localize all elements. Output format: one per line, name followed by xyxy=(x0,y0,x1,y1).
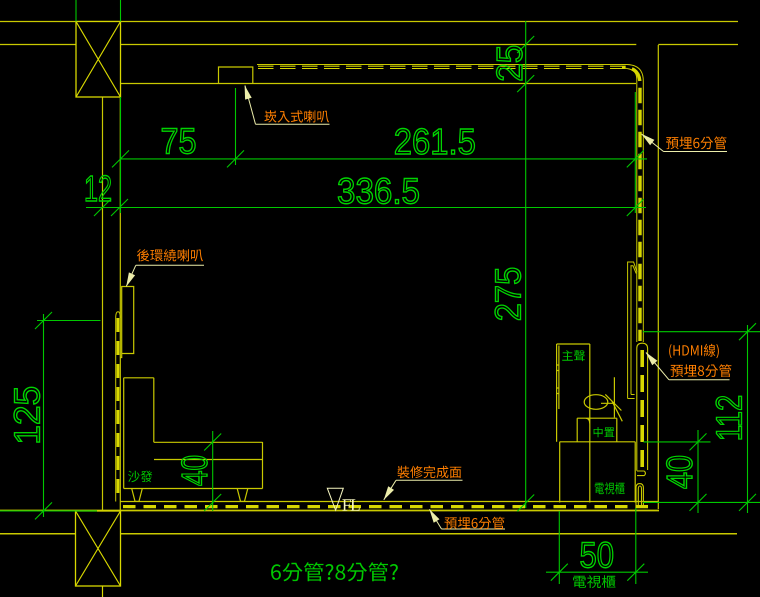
svg-text:336.5: 336.5 xyxy=(337,171,420,212)
svg-text:40: 40 xyxy=(659,455,700,489)
svg-text:25: 25 xyxy=(489,45,530,82)
svg-text:50: 50 xyxy=(580,535,615,576)
svg-text:75: 75 xyxy=(161,121,197,162)
svg-text:40: 40 xyxy=(174,455,215,486)
svg-text:261.5: 261.5 xyxy=(394,121,476,162)
svg-text:112: 112 xyxy=(709,395,750,442)
svg-text:12: 12 xyxy=(84,168,112,209)
svg-text:275: 275 xyxy=(488,267,529,322)
svg-text:125: 125 xyxy=(7,386,48,445)
